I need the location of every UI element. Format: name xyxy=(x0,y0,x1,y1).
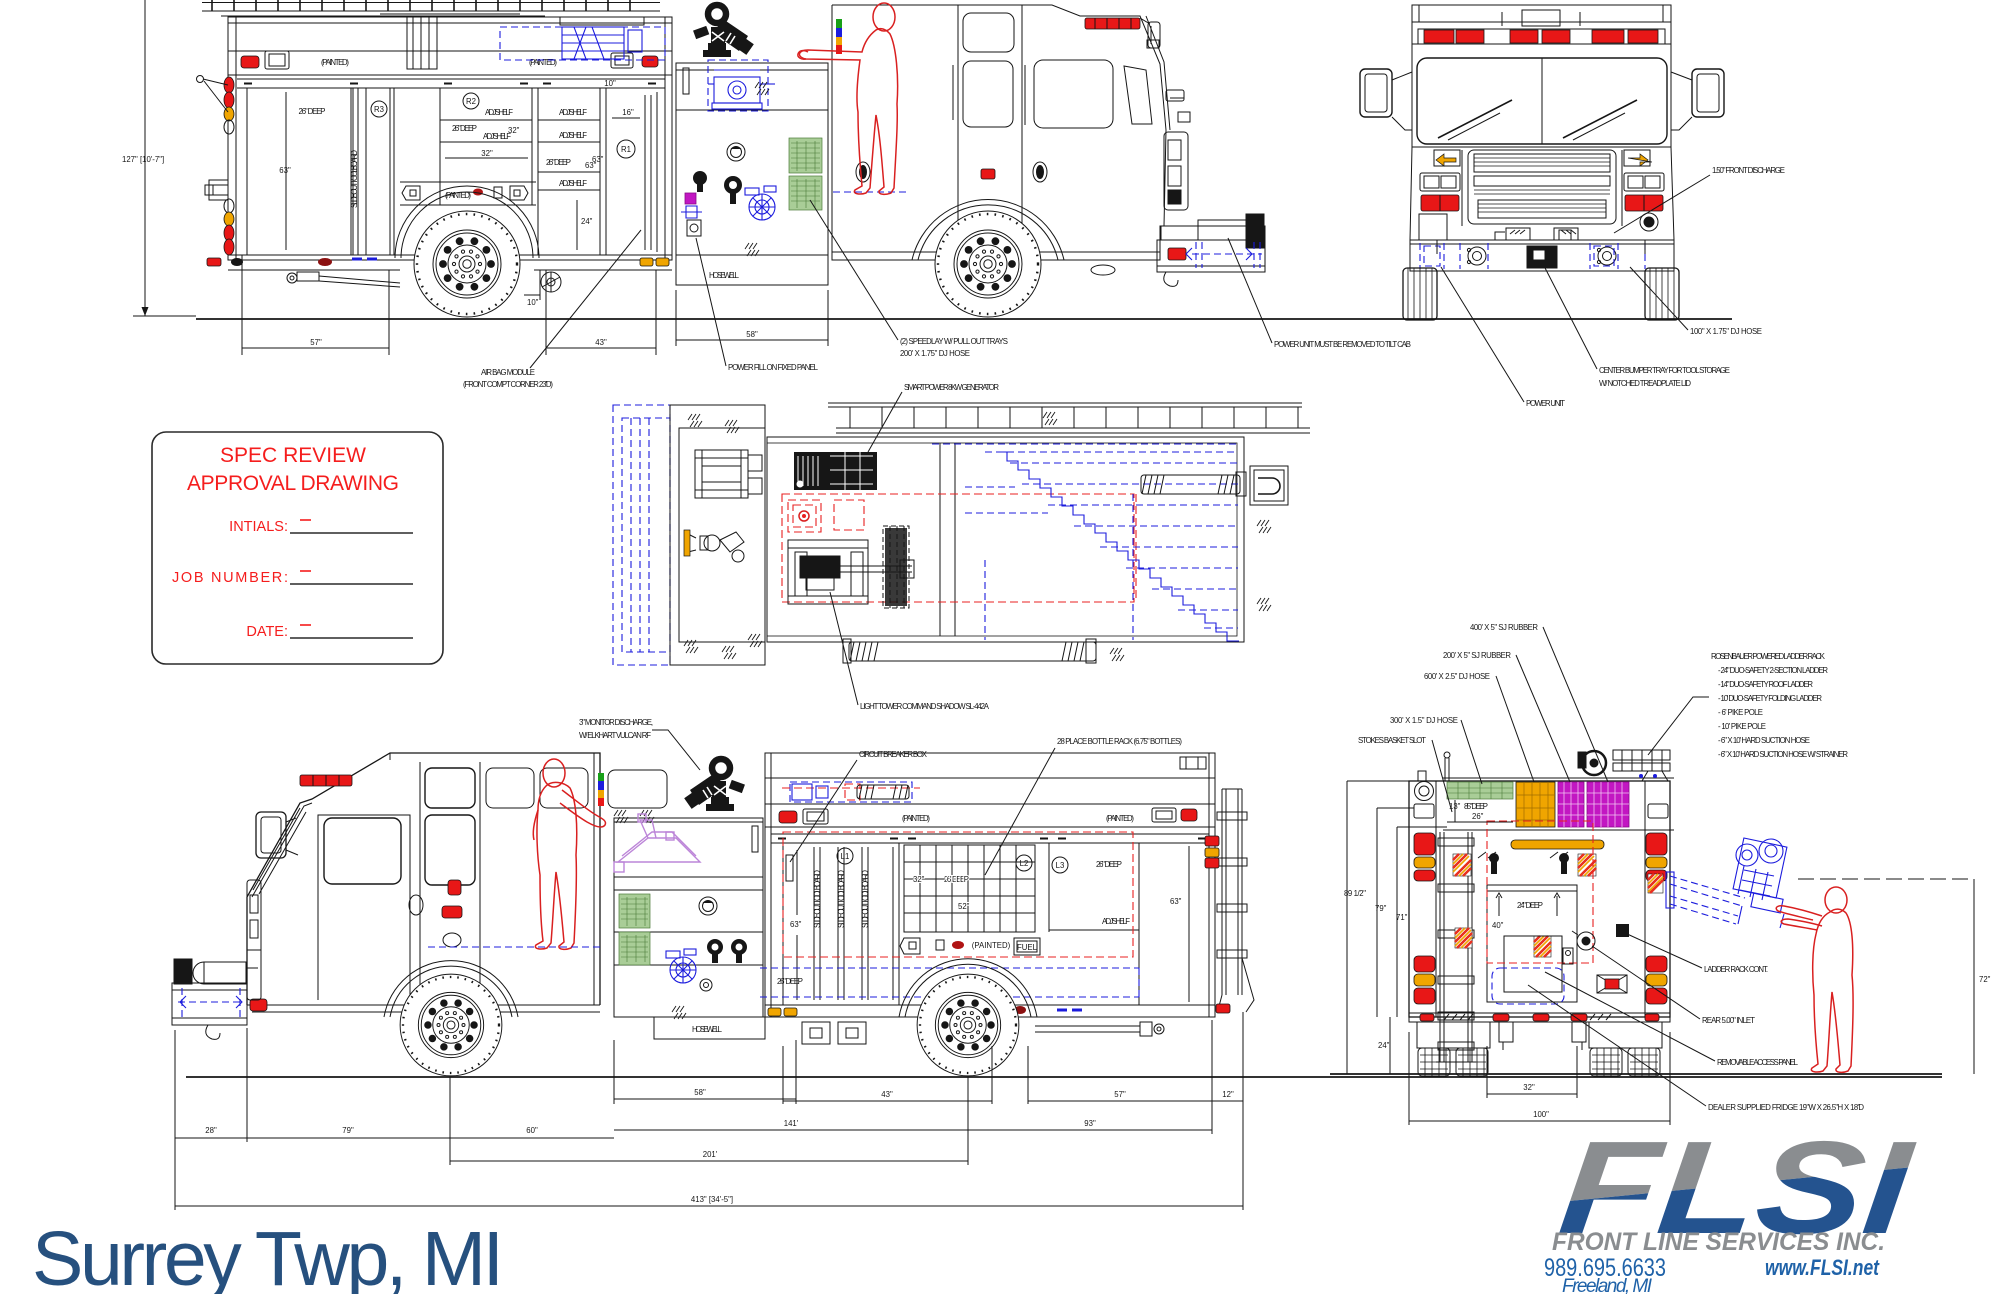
svg-text:www.FLSI.net: www.FLSI.net xyxy=(1765,1255,1880,1280)
svg-text:63": 63" xyxy=(790,920,802,929)
svg-text:12": 12" xyxy=(1222,1090,1234,1099)
svg-text:W/ NOTCHED TREADPLATE LID: W/ NOTCHED TREADPLATE LID xyxy=(1599,379,1691,388)
svg-text:- 14" DUO-SAFETY ROOF LADDER: - 14" DUO-SAFETY ROOF LADDER xyxy=(1718,680,1813,689)
svg-text:(PAINTED): (PAINTED) xyxy=(529,58,557,67)
svg-text:ADJ SHELF: ADJ SHELF xyxy=(559,131,587,140)
svg-text:HOSEWELL: HOSEWELL xyxy=(709,271,740,280)
svg-text:R2: R2 xyxy=(466,97,476,106)
svg-text:Freeland, MI: Freeland, MI xyxy=(1562,1276,1653,1294)
svg-text:100" X 1.75" DJ HOSE: 100" X 1.75" DJ HOSE xyxy=(1690,327,1762,336)
svg-text:200' X 1.75" DJ HOSE: 200' X 1.75" DJ HOSE xyxy=(900,349,970,358)
svg-text:63": 63" xyxy=(1170,897,1182,906)
svg-text:26" DEEP: 26" DEEP xyxy=(546,158,571,167)
svg-text:APPROVAL DRAWING: APPROVAL DRAWING xyxy=(187,472,399,495)
svg-text:ADJ SHELF: ADJ SHELF xyxy=(483,132,511,141)
svg-text:201': 201' xyxy=(703,1150,718,1159)
svg-text:57": 57" xyxy=(310,338,322,347)
svg-text:- 6" X 10' HARD SUCTION HOSE: - 6" X 10' HARD SUCTION HOSE W/ STRAINER xyxy=(1718,750,1848,759)
svg-text:POWER FILL ON FIXED PANEL: POWER FILL ON FIXED PANEL xyxy=(728,363,819,372)
svg-text:10": 10" xyxy=(527,298,539,307)
svg-text:SLIDE OUT TOOLBOARD: SLIDE OUT TOOLBOARD xyxy=(350,150,359,208)
svg-text:HOSEWELL: HOSEWELL xyxy=(692,1025,723,1034)
svg-text:200' X 5" SJ RUBBER: 200' X 5" SJ RUBBER xyxy=(1443,651,1511,660)
svg-text:FRONT LINE SERVICES INC.: FRONT LINE SERVICES INC. xyxy=(1552,1228,1885,1256)
svg-text:REAR 5.00" INLET: REAR 5.00" INLET xyxy=(1702,1016,1755,1025)
svg-text:58": 58" xyxy=(694,1088,706,1097)
svg-text:63": 63" xyxy=(592,155,604,164)
svg-text:(PAINTED): (PAINTED) xyxy=(1106,814,1134,823)
svg-text:SLIDE OUT TOOLBOARD: SLIDE OUT TOOLBOARD xyxy=(837,870,846,928)
svg-text:AIR BAG MODULE: AIR BAG MODULE xyxy=(481,368,535,377)
svg-text:CIRCUIT BREAKER BOX: CIRCUIT BREAKER BOX xyxy=(859,750,928,759)
svg-text:26" DEEP: 26" DEEP xyxy=(299,107,326,116)
svg-text:- 10' DUO-SAFETY FOLDING LADD: - 10' DUO-SAFETY FOLDING LADDER xyxy=(1718,694,1822,703)
svg-text:32": 32" xyxy=(1523,1083,1535,1092)
svg-text:R3: R3 xyxy=(374,105,384,114)
svg-text:26" DEEP: 26" DEEP xyxy=(944,875,969,884)
svg-text:26" DEEP: 26" DEEP xyxy=(452,124,477,133)
svg-text:CENTER BUMPER TRAY FOR TOOL ST: CENTER BUMPER TRAY FOR TOOL STORAGE xyxy=(1599,366,1730,375)
svg-text:58": 58" xyxy=(746,330,758,339)
svg-text:413" [34'-5"]: 413" [34'-5"] xyxy=(691,1195,733,1204)
svg-text:26": 26" xyxy=(1472,812,1484,821)
svg-text:24" DEEP: 24" DEEP xyxy=(1517,901,1543,910)
svg-text:71": 71" xyxy=(1396,913,1408,922)
svg-text:FUEL: FUEL xyxy=(1017,943,1038,952)
svg-text:400' X 5" SJ RUBBER: 400' X 5" SJ RUBBER xyxy=(1470,623,1538,632)
svg-text:Surrey Twp, MI: Surrey Twp, MI xyxy=(32,1216,504,1294)
svg-text:52": 52" xyxy=(958,902,970,911)
svg-text:72": 72" xyxy=(1979,975,1991,984)
svg-text:SLIDE OUT TOOLBOARD: SLIDE OUT TOOLBOARD xyxy=(861,870,870,928)
svg-text:26" DEEP: 26" DEEP xyxy=(1096,860,1122,869)
svg-text:600' X 2.5" DJ HOSE: 600' X 2.5" DJ HOSE xyxy=(1424,672,1490,681)
svg-text:141': 141' xyxy=(784,1119,799,1128)
svg-text:- 10' PIKE POLE: - 10' PIKE POLE xyxy=(1718,722,1766,731)
svg-text:43": 43" xyxy=(881,1090,893,1099)
svg-text:L2: L2 xyxy=(1020,859,1029,868)
svg-text:24": 24" xyxy=(581,217,593,226)
svg-text:79": 79" xyxy=(1375,904,1387,913)
svg-text:57": 57" xyxy=(1114,1090,1126,1099)
svg-text:- 24" DUO-SAFETY 2-SECTION LA: - 24" DUO-SAFETY 2-SECTION LADDER xyxy=(1718,666,1828,675)
svg-text:93": 93" xyxy=(1084,1119,1096,1128)
svg-text:28": 28" xyxy=(205,1126,217,1135)
svg-text:16": 16" xyxy=(622,108,634,117)
svg-text:(PAINTED): (PAINTED) xyxy=(902,814,930,823)
svg-text:ROSENBAUER POWERED LADDER RACK: ROSENBAUER POWERED LADDER RACK xyxy=(1711,652,1826,661)
svg-text:32": 32" xyxy=(481,149,493,158)
svg-text:32": 32" xyxy=(508,126,520,135)
svg-text:(FRONT COMPT CORNER 23'D): (FRONT COMPT CORNER 23'D) xyxy=(463,380,553,389)
svg-text:40": 40" xyxy=(1492,921,1504,930)
svg-text:3" MONITOR DISCHARGE,: 3" MONITOR DISCHARGE, xyxy=(579,718,653,727)
svg-text:R1: R1 xyxy=(621,145,631,154)
svg-text:10": 10" xyxy=(604,79,616,88)
svg-text:DATE:: DATE: xyxy=(246,624,288,640)
svg-text:(PAINTED): (PAINTED) xyxy=(321,58,349,67)
svg-text:1.50" FRONT DISCHARGE: 1.50" FRONT DISCHARGE xyxy=(1712,166,1785,175)
svg-text:300' X 1.5" DJ HOSE: 300' X 1.5" DJ HOSE xyxy=(1390,716,1458,725)
svg-text:79": 79" xyxy=(342,1126,354,1135)
svg-text:POWER UNIT MUST BE REMOVED TO: POWER UNIT MUST BE REMOVED TO TILT CAB xyxy=(1274,340,1411,349)
svg-text:26" DEEP: 26" DEEP xyxy=(777,977,803,986)
svg-text:32": 32" xyxy=(913,875,925,884)
svg-text:ADJ SHELF: ADJ SHELF xyxy=(485,108,513,117)
svg-text:(PAINTED): (PAINTED) xyxy=(972,941,1011,950)
svg-text:85" DEEP: 85" DEEP xyxy=(1464,802,1488,811)
svg-text:(2) SPEEDLAY W/ PULL OUT TRAYS: (2) SPEEDLAY W/ PULL OUT TRAYS xyxy=(900,337,1008,346)
svg-text:DEALER SUPPLIED FRIDGE 19"W X: DEALER SUPPLIED FRIDGE 19"W X 26.5"H X 1… xyxy=(1708,1103,1864,1112)
svg-text:100": 100" xyxy=(1533,1110,1549,1119)
svg-text:SMART POWER 8KW GENERATOR: SMART POWER 8KW GENERATOR xyxy=(904,383,999,392)
svg-text:W/ ELKHART VULCAN RF: W/ ELKHART VULCAN RF xyxy=(579,731,651,740)
svg-text:89 1/2": 89 1/2" xyxy=(1344,889,1366,898)
svg-text:L3: L3 xyxy=(1056,861,1065,870)
svg-text:LADDER RACK CONT.: LADDER RACK CONT. xyxy=(1704,965,1768,974)
svg-text:43": 43" xyxy=(595,338,607,347)
svg-text:ADJ SHELF: ADJ SHELF xyxy=(1102,917,1130,926)
svg-text:- 6' PIKE POLE: - 6' PIKE POLE xyxy=(1718,708,1763,717)
svg-text:INTIALS:: INTIALS: xyxy=(229,519,288,535)
svg-text:L1: L1 xyxy=(841,852,850,861)
svg-text:LIGHT TOWER COMMAND SHADOW SL-: LIGHT TOWER COMMAND SHADOW SL-442A xyxy=(860,702,990,711)
svg-text:ADJ SHELF: ADJ SHELF xyxy=(559,179,587,188)
svg-text:REMOVABLE ACCESS PANEL: REMOVABLE ACCESS PANEL xyxy=(1717,1058,1799,1067)
svg-text:- 6" X 10' HARD SUCTION HOSE: - 6" X 10' HARD SUCTION HOSE xyxy=(1718,736,1810,745)
svg-text:ADJ SHELF: ADJ SHELF xyxy=(559,108,587,117)
svg-text:SPEC REVIEW: SPEC REVIEW xyxy=(220,444,366,467)
svg-text:SLIDE OUT TOOLBOARD: SLIDE OUT TOOLBOARD xyxy=(813,870,822,928)
svg-text:127" [10'-7"]: 127" [10'-7"] xyxy=(122,155,164,164)
svg-text:POWER UNIT: POWER UNIT xyxy=(1526,399,1565,408)
svg-text:28 PLACE BOTTLE RACK (6.75" BO: 28 PLACE BOTTLE RACK (6.75" BOTTLES) xyxy=(1057,737,1182,746)
svg-text:24": 24" xyxy=(1378,1041,1390,1050)
svg-text:60": 60" xyxy=(526,1126,538,1135)
svg-text:STOKES BASKET SLOT: STOKES BASKET SLOT xyxy=(1358,736,1426,745)
svg-text:63": 63" xyxy=(279,166,291,175)
